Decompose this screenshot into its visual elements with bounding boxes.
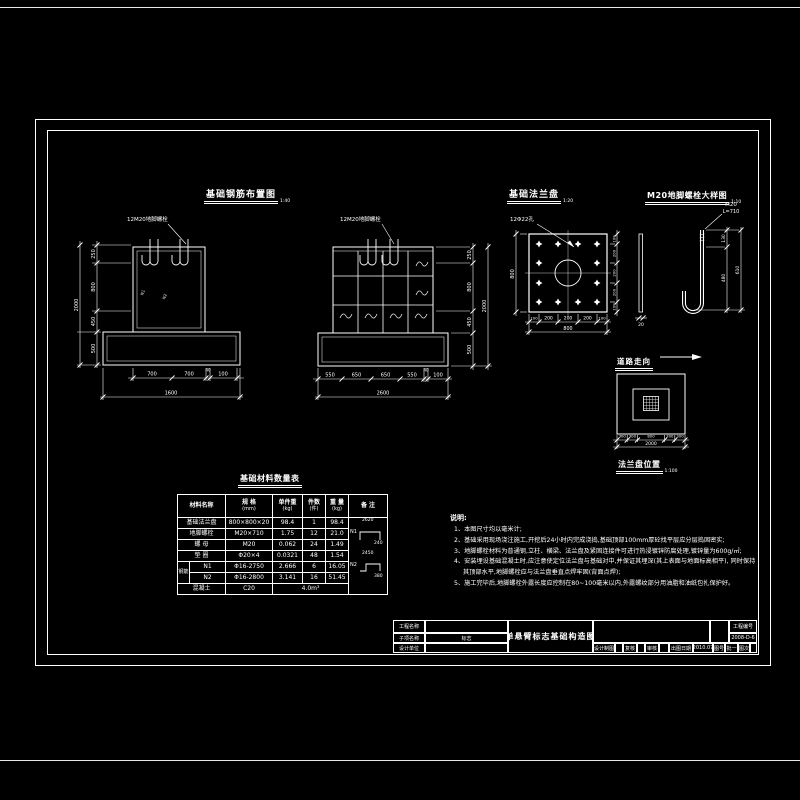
arrowhead xyxy=(692,354,702,360)
subitem-name-label: 子项名称 xyxy=(393,633,425,643)
sheet-no-label: 图次 xyxy=(738,643,750,653)
reviewer-label: 审核 xyxy=(645,643,659,653)
dim-label: 450 xyxy=(467,317,473,327)
dim-label: 200 xyxy=(544,316,553,322)
project-no-value: 2008-D-6 xyxy=(729,633,757,643)
anchor-bolt xyxy=(142,239,150,265)
dim-label: 550 xyxy=(407,373,417,379)
design-unit-value xyxy=(425,643,508,653)
dim-label: 300 xyxy=(629,434,637,439)
title-block-blank xyxy=(710,620,729,643)
dim-label: 650 xyxy=(381,373,391,379)
j-bolt-outline xyxy=(684,230,702,312)
note-item: 1、本图尺寸均以毫米计; xyxy=(450,525,758,536)
table-title-text: 基础材料数量表 xyxy=(238,473,302,488)
cell-unit: 0.0321 xyxy=(273,551,303,562)
col-header-weight: 重 量(kg) xyxy=(326,495,349,518)
road-direction-label: 道路走向 xyxy=(615,349,653,371)
dim-label: 200 xyxy=(612,288,617,296)
fig2-rebar-elevation xyxy=(313,224,492,400)
dim-label: 100 xyxy=(218,372,228,378)
title-block-blank xyxy=(593,620,710,643)
dim-label: 1600 xyxy=(165,391,178,397)
dim-label: 300 xyxy=(676,434,684,439)
fig3-scale: 1:20 xyxy=(563,199,573,204)
note-item: 5、施工完毕后,地脚螺栓外露长度应控制在80~100毫米以内,外露螺纹部分用油脂… xyxy=(450,579,758,590)
cell-weight: 51.45 xyxy=(326,573,349,584)
flange-mesh-hatch xyxy=(644,397,659,411)
fig4-anchor-bolt-detail xyxy=(684,214,745,313)
cell-unit: 3.141 xyxy=(273,573,303,584)
cell-name: N2 xyxy=(190,573,226,584)
dim-label: 800 xyxy=(510,269,516,279)
anchor-bolt xyxy=(180,239,188,265)
remark-sketch-n1: N1 2620 240 xyxy=(349,518,387,551)
project-no-label: 工程编号 xyxy=(729,620,757,633)
cell-name: N1 xyxy=(190,562,226,573)
fig4-title: M20地脚螺栓大样图1:10 xyxy=(645,183,741,205)
cell-weight: 16.05 xyxy=(326,562,349,573)
col-header-spec: 规 格(mm) xyxy=(226,495,273,518)
cell-unit: 2.666 xyxy=(273,562,303,573)
drawing-no-value: 批一 xyxy=(725,643,738,653)
remark-n1-dim: 2620 xyxy=(362,519,373,524)
dim-label: 300 xyxy=(619,434,627,439)
fig1-scale: 1:40 xyxy=(280,199,290,204)
fig2-bolt-label: 12M20地脚螺栓 xyxy=(340,215,381,223)
col-header-unit-weight: 单件重(kg) xyxy=(273,495,303,518)
remark-sketch-n2: N2 2450 380 xyxy=(349,551,387,584)
leader-line xyxy=(168,224,186,244)
dim-label: 2000 xyxy=(645,441,657,447)
cell-unit: 0.062 xyxy=(273,540,303,551)
cell-spec: Φ16-2750 xyxy=(226,562,273,573)
fig1-bolt-label: 12M20地脚螺栓 xyxy=(127,215,168,223)
fig3-title: 基础法兰盘1:20 xyxy=(507,182,573,204)
dim-label: 2000 xyxy=(74,299,80,312)
cell-spec: M20 xyxy=(226,540,273,551)
cell-name: 螺 母 xyxy=(178,540,226,551)
anchor-bolt xyxy=(150,239,158,265)
anchor-bolt xyxy=(368,239,376,265)
cell-qty: 6 xyxy=(303,562,326,573)
dim-label: 100 xyxy=(530,316,538,321)
dim-label: 130 xyxy=(721,234,727,243)
fig3-title-text: 基础法兰盘 xyxy=(507,187,561,204)
dim-label: 250 xyxy=(467,250,473,260)
dim-label: 610 xyxy=(735,266,741,275)
dim-label: 450 xyxy=(91,317,97,327)
fig1-title-text: 基础钢筋布置图 xyxy=(204,187,278,204)
dim-label: 500 xyxy=(467,345,473,355)
dim-label: 800 xyxy=(563,326,572,332)
cell-unit: 98.4 xyxy=(273,518,303,529)
dim-label: 2000 xyxy=(482,300,488,313)
anchor-bolt xyxy=(390,239,398,265)
dim-label: 700 xyxy=(147,372,157,378)
dim-label: 700 xyxy=(184,372,194,378)
project-name-label: 工程名称 xyxy=(393,620,425,633)
dim-label: 40 xyxy=(205,368,211,373)
fig5-title: 法兰盘位置1:100 xyxy=(616,452,677,474)
remark-cell: N1 2620 240 N2 2450 380 xyxy=(349,518,388,595)
checker-value xyxy=(637,643,645,653)
dim-label: 20 xyxy=(638,322,644,328)
notes-block: 说明: 1、本图尺寸均以毫米计; 2、基础采用现场浇注施工,开挖后24小时内完成… xyxy=(450,513,758,590)
dim-label: 100 xyxy=(433,373,443,379)
dimension-labels: 12M20地脚螺栓 250 800 450 500 2000 700 700 4… xyxy=(74,202,741,447)
remark-n2-dim: 2450 xyxy=(362,552,373,557)
cad-drawing-viewport: 12M20地脚螺栓 250 800 450 500 2000 700 700 4… xyxy=(0,0,800,800)
cell-unit: 1.75 xyxy=(273,529,303,540)
fig5-scale: 1:100 xyxy=(665,469,678,474)
table-title: 基础材料数量表 xyxy=(238,466,302,488)
cell-weight: 21.0 xyxy=(326,529,349,540)
checker-label: 复核 xyxy=(623,643,637,653)
designer-value xyxy=(615,643,623,653)
col-header-qty: 件数(件) xyxy=(303,495,326,518)
dim-label: 480 xyxy=(721,274,727,283)
cell-spec: M20×710 xyxy=(226,529,273,540)
dim-label: 300 xyxy=(666,434,674,439)
fig4-title-text: M20地脚螺栓大样图 xyxy=(645,190,729,205)
title-block: 工程名称 子项名称 设计单位 标志 单悬臂标志基础构造图 工程编号 2008-D… xyxy=(393,620,757,653)
rebar-group-label: 钢筋 xyxy=(178,562,190,584)
col-header-material: 材料名称 xyxy=(178,495,226,518)
subitem-name-value: 标志 xyxy=(425,633,508,643)
dim-label: 200 xyxy=(583,316,592,322)
anchor-bolt xyxy=(360,239,368,265)
cell-qty: 16 xyxy=(303,573,326,584)
cell-name: 垫 圈 xyxy=(178,551,226,562)
dim-label: 40 xyxy=(423,368,429,373)
note-item: 3、地脚螺栓材料为普通钢,立柱、横梁、法兰盘及紧固连接件可进行热浸镀锌防腐处理,… xyxy=(450,547,758,558)
date-value: 2010.07 xyxy=(693,643,713,653)
cell-qty: 1 xyxy=(303,518,326,529)
dim-label: 100 xyxy=(598,316,606,321)
project-name-value xyxy=(425,620,508,633)
dim-label: 200 xyxy=(564,316,573,322)
design-unit-label: 设计单位 xyxy=(393,643,425,653)
dim-label: 800 xyxy=(647,434,655,439)
cell-weight: 1.54 xyxy=(326,551,349,562)
fig3-hole-label: 12Φ22孔 xyxy=(510,215,534,223)
road-direction-text: 道路走向 xyxy=(615,356,653,371)
cell-qty: 24 xyxy=(303,540,326,551)
rebar-break-marks xyxy=(340,262,428,318)
cell-qty: 12 xyxy=(303,529,326,540)
leader-line xyxy=(705,214,722,229)
cell-spec: Φ16-2800 xyxy=(226,573,273,584)
dim-label: 200 xyxy=(612,269,617,277)
fig2-dim-lines xyxy=(313,243,492,400)
cell-name: 混凝土 xyxy=(178,584,226,595)
plate-side-view xyxy=(639,234,643,312)
drawing-linework: 12M20地脚螺栓 250 800 450 500 2000 700 700 4… xyxy=(0,0,800,800)
sheet-no-value xyxy=(750,643,757,653)
drawing-title: 单悬臂标志基础构造图 xyxy=(508,620,593,653)
designer-label: 设计制图 xyxy=(593,643,615,653)
remark-n1-label: N1 xyxy=(350,530,357,535)
dim-label: 500 xyxy=(91,344,97,354)
leader-line xyxy=(382,224,394,244)
rebar-mark: N1 xyxy=(139,289,146,296)
fig5-title-text: 法兰盘位置 xyxy=(616,459,663,474)
cell-weight: 98.4 xyxy=(326,518,349,529)
table-row: 基础法兰盘 800×800×20 98.4 1 98.4 N1 2620 240… xyxy=(178,518,388,529)
dim-label: 550 xyxy=(325,373,335,379)
dim-label: 100 xyxy=(612,235,617,243)
dim-label: 800 xyxy=(91,282,97,292)
dim-label: 2600 xyxy=(377,391,390,397)
cell-volume: 4.0m³ xyxy=(273,584,349,595)
dim-label: 200 xyxy=(612,249,617,257)
date-label: 出图日期 xyxy=(669,643,693,653)
note-item: 4、安装埋设基础混凝土时,应注意使定位法兰盘与基础对中,并保证其埋深(其上表面与… xyxy=(450,557,758,579)
remark-n1-dim2: 240 xyxy=(374,542,383,547)
dim-label: 250 xyxy=(91,249,97,259)
dim-label: 100 xyxy=(612,303,617,311)
anchor-bolt xyxy=(172,239,180,265)
remark-n2-label: N2 xyxy=(350,563,357,568)
cell-name: 基础法兰盘 xyxy=(178,518,226,529)
fig4-scale: 1:10 xyxy=(731,200,741,205)
cell-spec: Φ20×4 xyxy=(226,551,273,562)
cell-name: 地脚螺栓 xyxy=(178,529,226,540)
notes-title: 说明: xyxy=(450,513,758,523)
dim-label: 650 xyxy=(352,373,362,379)
table-header-row: 材料名称 规 格(mm) 单件重(kg) 件数(件) 重 量(kg) 备 注 xyxy=(178,495,388,518)
cell-spec: C20 xyxy=(226,584,273,595)
col-header-remark: 备 注 xyxy=(349,495,388,518)
dim-label: 800 xyxy=(467,282,473,292)
cell-spec: 800×800×20 xyxy=(226,518,273,529)
material-quantity-table: 材料名称 规 格(mm) 单件重(kg) 件数(件) 重 量(kg) 备 注 基… xyxy=(177,494,388,595)
note-item: 2、基础采用现场浇注施工,开挖后24小时内完成浇捣,基础顶部100mm厚砼找平层… xyxy=(450,536,758,547)
reviewer-value xyxy=(659,643,669,653)
cell-weight: 1.49 xyxy=(326,540,349,551)
fig1-title: 基础钢筋布置图1:40 xyxy=(204,182,290,204)
rebar-mark: N2 xyxy=(161,293,168,300)
cell-qty: 48 xyxy=(303,551,326,562)
bolt-length-label: L=710 xyxy=(723,209,740,215)
drawing-no-label: 图号 xyxy=(713,643,725,653)
remark-n2-dim2: 380 xyxy=(374,575,383,580)
